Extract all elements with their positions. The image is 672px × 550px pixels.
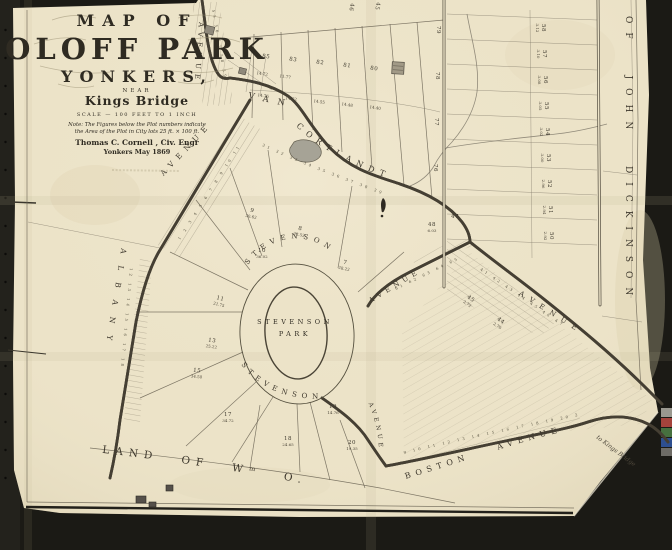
map-note-line2: the Area of the Plot in City lots 25 ft.…: [75, 129, 200, 135]
plot-label: 47: [451, 214, 459, 220]
plot-label: 79: [435, 26, 441, 34]
plot-label: 80: [370, 65, 379, 72]
building: [149, 502, 156, 507]
binding-hole: [4, 225, 6, 227]
plot-label: 3.02: [539, 128, 544, 137]
plot-label: 77: [433, 118, 439, 126]
binding-hole: [4, 141, 6, 143]
building: [136, 496, 146, 503]
park-name-line2: PARK: [279, 330, 311, 338]
plot-label: 2.92: [543, 232, 548, 241]
map-title-kings-bridge: Kings Bridge: [85, 93, 189, 108]
binding-hole: [4, 449, 6, 451]
plot-label: 2.96: [541, 180, 546, 189]
plot-label: 6.03: [428, 228, 437, 233]
binding-hole: [4, 85, 6, 87]
plot-label: 81: [343, 62, 352, 69]
plot-label: 78: [434, 72, 440, 80]
map-date: Yonkers May 1869: [103, 148, 171, 156]
park-name-line1: STEVENSON: [257, 318, 333, 326]
map-surveyor: Thomas C. Cornell , Civ. Engr: [75, 138, 199, 147]
plot-label: 36.02: [256, 254, 268, 259]
map-note-line1: Note: The Figures below the Plot numbers…: [67, 122, 206, 128]
land-label-dickinson: OF JOHN DICKINSON: [623, 16, 633, 304]
plot-label: 3.08: [537, 76, 542, 85]
binding-hole: [4, 169, 6, 171]
building: [392, 62, 405, 75]
map-title-line3: YONKERS,: [60, 67, 213, 86]
binding-hole: [4, 365, 6, 367]
binding-hole: [4, 281, 6, 283]
binding-hole: [4, 477, 6, 479]
binding-hole: [4, 253, 6, 255]
binding-hole: [4, 421, 6, 423]
color-calibration-strip: [661, 408, 672, 456]
plot-label: 3.10: [536, 50, 541, 59]
map-image: AVENUE VAN CORTLANDT ALBANY AVENUE STEVE…: [0, 0, 672, 550]
scanned-map-photo: AVENUE VAN CORTLANDT ALBANY AVENUE STEVE…: [0, 0, 672, 550]
plot-label: 2.94: [542, 206, 547, 215]
plot-label: 34.72: [222, 418, 234, 423]
plot-label: 3.05: [538, 102, 543, 111]
map-title-line1: MAP OF: [76, 11, 197, 30]
map-scale: SCALE — 100 FEET TO 1 INCH: [77, 112, 197, 118]
building: [166, 485, 173, 491]
plot-label: 24.65: [282, 442, 294, 447]
binding-hole: [4, 393, 6, 395]
binding-hole: [4, 309, 6, 311]
plot-label: 83: [289, 56, 298, 63]
map-title-line2: OLOFF PARK: [5, 32, 269, 66]
plot-label: 3.00: [540, 154, 545, 163]
binding-hole: [4, 29, 6, 31]
binding-hole: [4, 337, 6, 339]
plot-label: 19.35: [346, 446, 358, 451]
plot-label: 3.12: [535, 24, 540, 33]
plot-label: 76: [432, 164, 438, 172]
binding-hole: [4, 113, 6, 115]
plot-label: 82: [316, 59, 325, 66]
plot-label: 14.76: [327, 410, 339, 415]
building: [238, 67, 246, 75]
